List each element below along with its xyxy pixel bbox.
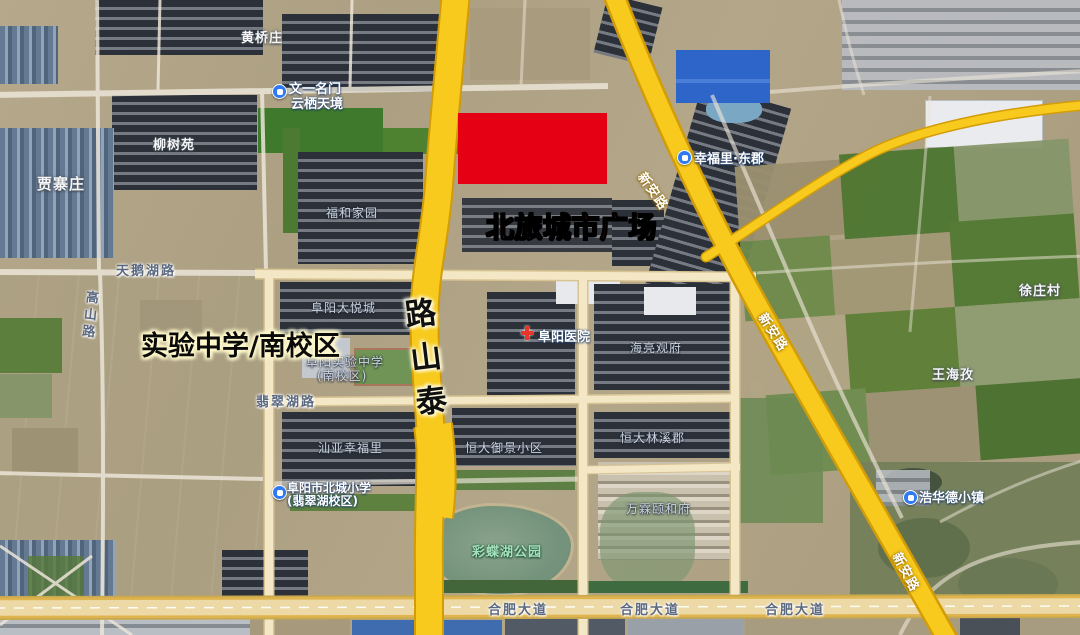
plaza-annotation: 北旅城市广场 <box>486 206 657 246</box>
road-label-feicui: 翡翠湖路 <box>256 391 316 410</box>
taishan-char: 泰 <box>409 377 454 426</box>
road-label-hefei-1: 合肥大道 <box>488 599 548 618</box>
area-shanya-xingfuli: 汕亚幸福里 <box>318 439 383 456</box>
taishan-char: 山 <box>403 334 448 383</box>
village-xuzhuangcun: 徐庄村 <box>1019 280 1061 299</box>
village-wanghaizi: 王海孜 <box>932 364 974 383</box>
poi-icon-hospital[interactable] <box>520 325 533 340</box>
village-liushuyuan: 柳树苑 <box>153 134 195 153</box>
school-annotation: 实验中学/南校区 <box>141 324 340 363</box>
area-shiyan-line2: (南校区) <box>317 367 367 384</box>
road-spur <box>706 105 1080 257</box>
poi-icon-wenyi[interactable] <box>272 84 287 99</box>
road-gaoshan <box>100 272 103 635</box>
satellite-map[interactable]: 北旅城市广场 实验中学/南校区 路 山 泰 文一名门云栖天境幸福里·东郡阜阳医院… <box>0 0 1080 635</box>
road-label-hefei-2: 合肥大道 <box>620 599 680 618</box>
area-wanlin-yihe: 万霖颐和府 <box>626 500 691 517</box>
poi-beicheng-line2[interactable]: (翡翠湖校区) <box>287 492 358 509</box>
poi-wenyi-line2[interactable]: 云栖天境 <box>291 93 343 112</box>
area-dayuecheng: 阜阳大悦城 <box>311 299 376 316</box>
poi-xingfuli[interactable]: 幸福里·东郡 <box>694 148 764 167</box>
village-huangqiaozhuang: 黄桥庄 <box>241 27 283 46</box>
area-fuhe-jiayuan: 福和家园 <box>326 204 378 221</box>
poi-hospital[interactable]: 阜阳医院 <box>538 326 590 345</box>
area-hailiang-guanfu: 海亮观府 <box>630 339 682 356</box>
park-caidiehu: 彩蝶湖公园 <box>472 541 542 560</box>
road-label-hefei-3: 合肥大道 <box>765 599 825 618</box>
village-jiazhaizhuang: 贾寨庄 <box>37 173 85 194</box>
area-hengda-linxi: 恒大林溪郡 <box>620 429 685 446</box>
highlight-box <box>458 113 607 184</box>
poi-icon-haohuade[interactable] <box>903 490 918 505</box>
poi-haohuade[interactable]: 浩华德小镇 <box>919 487 984 506</box>
area-hengda-yujing: 恒大御景小区 <box>465 439 543 456</box>
road-label-tianehu: 天鹅湖路 <box>116 260 176 279</box>
roads-layer <box>0 0 1080 635</box>
taishan-char: 路 <box>398 290 443 339</box>
poi-icon-beicheng-school[interactable] <box>272 485 287 500</box>
poi-icon-xingfuli[interactable] <box>677 150 692 165</box>
